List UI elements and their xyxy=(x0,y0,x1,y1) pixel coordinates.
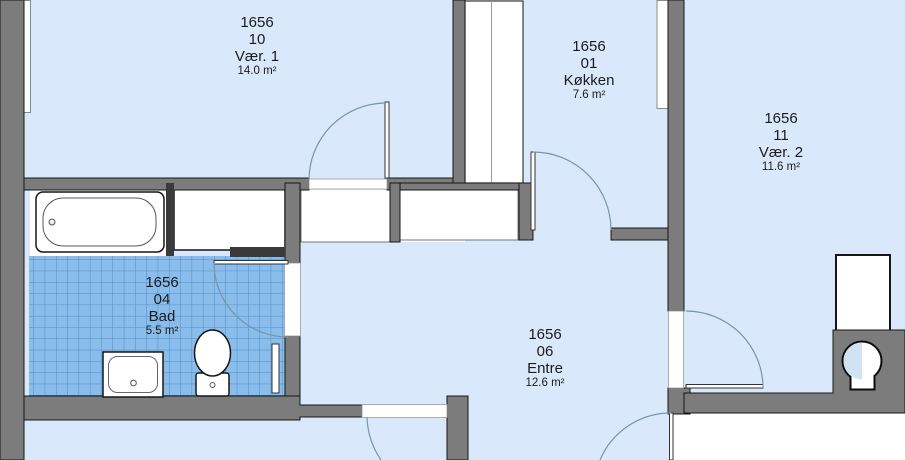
wall-tub-divider xyxy=(166,183,174,256)
floor-plan-drawing xyxy=(0,0,905,460)
room-unit: 1656 xyxy=(145,274,178,291)
bath-closet-niche xyxy=(174,187,285,250)
room-area: 7.6 m² xyxy=(564,89,615,102)
floor-plan: 1656 10 Vær. 1 14.0 m² 1656 01 Køkken 7.… xyxy=(0,0,905,460)
room-name: Køkken xyxy=(564,72,615,89)
wall-bad-right-upper xyxy=(285,183,300,263)
room-name: Vær. 1 xyxy=(235,48,279,65)
room-name: Vær. 2 xyxy=(759,144,803,161)
door-opening-bottom-room xyxy=(362,405,447,418)
room-area: 5.5 m² xyxy=(145,325,178,338)
wall-kitchen-bottom xyxy=(611,228,668,240)
cupboard-entre-2 xyxy=(400,190,518,240)
wall-vaer1-cabinet xyxy=(453,0,465,190)
door-leaf-bad xyxy=(214,261,288,265)
room-number: 10 xyxy=(235,31,279,48)
room-label-vaer1: 1656 10 Vær. 1 14.0 m² xyxy=(235,14,279,78)
room-area: 12.6 m² xyxy=(526,377,565,390)
wall-closet-bottom xyxy=(230,247,285,257)
wall-cupboard-top xyxy=(400,183,519,190)
room-label-bad: 1656 04 Bad 5.5 m² xyxy=(145,274,178,338)
room-below-floor xyxy=(24,415,447,460)
wall-outer-left xyxy=(0,0,24,460)
room-number: 06 xyxy=(526,343,565,360)
door-opening-vaer2 xyxy=(669,311,684,388)
door-leaf-vaer2 xyxy=(686,385,763,389)
wall-koekken-vaer2 xyxy=(668,0,684,311)
room-name: Entre xyxy=(526,360,565,377)
room-area: 11.6 m² xyxy=(759,161,803,174)
door-leaf-koekken xyxy=(531,152,535,230)
radiator-strip-kitchen xyxy=(657,1,668,109)
room-label-koekken: 1656 01 Køkken 7.6 m² xyxy=(564,38,615,102)
cupboard-entre-1 xyxy=(301,189,390,242)
room-label-entre: 1656 06 Entre 12.6 m² xyxy=(526,326,565,390)
room-name: Bad xyxy=(145,308,178,325)
radiator-bad xyxy=(272,344,279,393)
door-leaf-vaer1 xyxy=(385,102,389,178)
room-unit: 1656 xyxy=(759,110,803,127)
room-entre-floor xyxy=(285,242,668,405)
room-unit: 1656 xyxy=(235,14,279,31)
room-number: 04 xyxy=(145,291,178,308)
sink xyxy=(103,352,163,397)
tall-cabinet xyxy=(465,1,523,183)
room-area: 14.0 m² xyxy=(235,65,279,78)
door-opening-bad xyxy=(285,263,301,336)
toilet xyxy=(195,330,231,396)
wall-cupboard-stub xyxy=(390,183,400,242)
room-unit: 1656 xyxy=(564,38,615,55)
bathtub xyxy=(36,192,164,252)
room-label-vaer2: 1656 11 Vær. 2 11.6 m² xyxy=(759,110,803,174)
wardrobe-vaer2 xyxy=(836,255,890,333)
room-entre-floor-lower xyxy=(460,405,673,460)
door-opening-vaer1 xyxy=(309,179,387,189)
wall-entre-bottom-left xyxy=(447,396,468,460)
door-leaf-entre xyxy=(670,413,674,460)
room-unit: 1656 xyxy=(526,326,565,343)
room-number: 11 xyxy=(759,127,803,144)
room-number: 01 xyxy=(564,55,615,72)
